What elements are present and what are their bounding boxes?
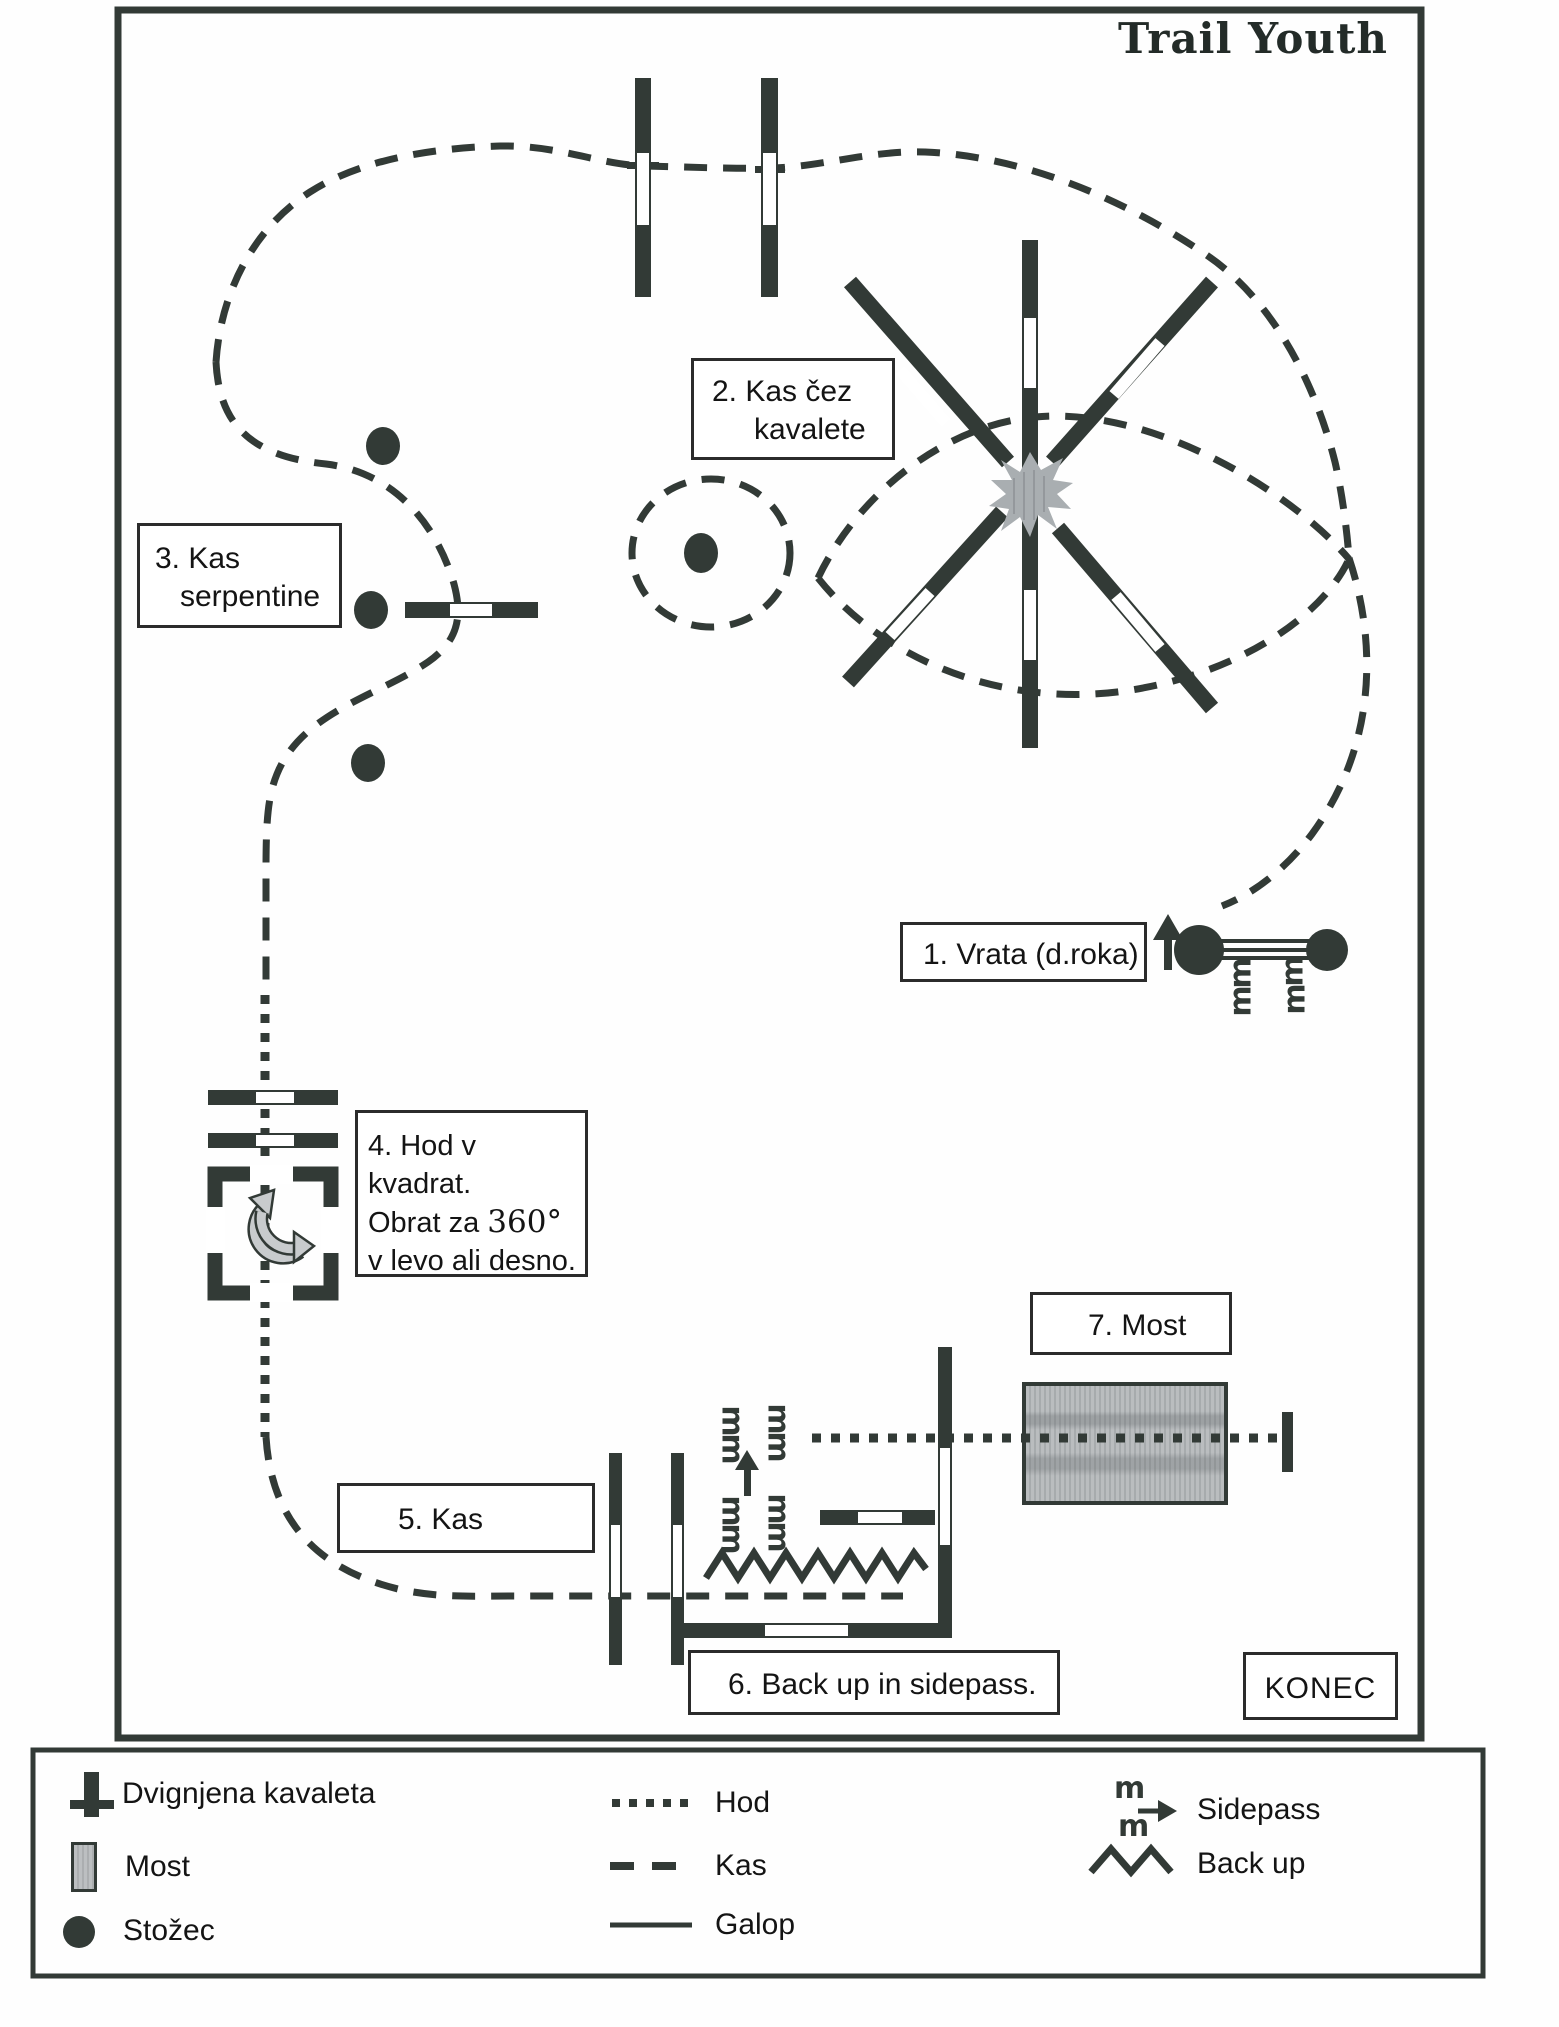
- square-obstacle: [206, 1090, 340, 1302]
- label-obstacle-3: 3. Kas serpentine: [137, 523, 342, 628]
- bridge-end-bar: [1282, 1412, 1293, 1472]
- cone-icon: [354, 591, 388, 629]
- legend-hoofprint-icon: m: [1114, 1774, 1145, 1804]
- finish-box: KONEC: [1243, 1652, 1398, 1720]
- turn-arrows-icon: [250, 1190, 314, 1262]
- label-line: 2. Kas čez: [712, 373, 892, 411]
- legend-item-sidepass: Sidepass: [1197, 1793, 1320, 1827]
- label-line: Obrat za 360°: [368, 1203, 585, 1242]
- label-obstacle-2: 2. Kas čez kavalete: [691, 358, 895, 460]
- label-line: 4. Hod v kvadrat.: [368, 1127, 585, 1203]
- trail-course-sheet: Trail Youth 2. Kas čez kavalete 3. Kas s…: [0, 0, 1559, 2027]
- hoofprint-icon: m: [1227, 985, 1257, 1016]
- hoofprint-icon: m: [717, 1523, 747, 1554]
- trot-serpentine-path: [216, 362, 458, 985]
- legend-bridge-icon: [71, 1842, 97, 1892]
- label-obstacle-7: 7. Most: [1030, 1292, 1232, 1355]
- backup-zigzag: [706, 1553, 926, 1578]
- label-line: 7. Most: [1088, 1307, 1229, 1345]
- label-obstacle-4: 4. Hod v kvadrat. Obrat za 360° v levo a…: [355, 1110, 588, 1277]
- finish-label: KONEC: [1246, 1670, 1395, 1708]
- legend-item-bridge: Most: [125, 1850, 190, 1884]
- hoofprint-icon: m: [763, 1493, 793, 1524]
- course-drawing: [0, 0, 1559, 2027]
- legend-cone-icon: [63, 1916, 95, 1948]
- legend-backup-zigzag: [1091, 1849, 1171, 1872]
- serpentine-obstacle: [405, 602, 538, 618]
- label-line: v levo ali desno.: [368, 1242, 585, 1280]
- label-line: kavalete: [712, 411, 892, 449]
- hoofprint-icon: m: [763, 1431, 793, 1462]
- hoofprint-icon: m: [1281, 983, 1311, 1014]
- label-obstacle-6: 6. Back up in sidepass.: [688, 1650, 1060, 1715]
- label-line: 6. Back up in sidepass.: [728, 1666, 1057, 1704]
- legend-raised-cavaletti-icon: [70, 1772, 114, 1817]
- label-line: 5. Kas: [398, 1501, 592, 1539]
- hoofprint-icon: m: [1279, 955, 1309, 986]
- hoofprint-icon: m: [763, 1403, 793, 1434]
- cone-icon: [351, 744, 385, 782]
- trot-path-top: [216, 146, 1349, 558]
- cone-icon: [366, 427, 400, 465]
- legend-item-walk: Hod: [715, 1786, 770, 1820]
- label-line: 3. Kas: [155, 540, 339, 578]
- legend-item-cone: Stožec: [123, 1914, 215, 1948]
- legend-item-raised-cavaletti: Dvignjena kavaleta: [122, 1777, 376, 1811]
- page-title: Trail Youth: [1118, 14, 1398, 63]
- legend-item-trot: Kas: [715, 1849, 767, 1883]
- hoofprint-icon: m: [1227, 957, 1257, 988]
- cone-icon: [684, 533, 718, 573]
- legend-item-canter: Galop: [715, 1908, 795, 1942]
- label-obstacle-1: 1. Vrata (d.roka): [900, 922, 1147, 982]
- label-obstacle-5: 5. Kas: [337, 1483, 595, 1553]
- hoofprint-icon: m: [717, 1495, 747, 1526]
- trot-path-to-gate: [1222, 558, 1367, 906]
- trot-poles-obstacle: [609, 1453, 684, 1665]
- start-poles: [627, 78, 785, 297]
- degrees-value: 360°: [487, 1204, 562, 1240]
- legend-item-backup: Back up: [1197, 1847, 1305, 1881]
- label-line: serpentine: [155, 578, 339, 616]
- hoofprint-icon: m: [717, 1405, 747, 1436]
- hoofprint-icon: m: [717, 1433, 747, 1464]
- label-line: 1. Vrata (d.roka): [923, 936, 1144, 974]
- legend-hoofprint-icon: m: [1118, 1812, 1149, 1842]
- hoofprint-icon: m: [763, 1521, 793, 1552]
